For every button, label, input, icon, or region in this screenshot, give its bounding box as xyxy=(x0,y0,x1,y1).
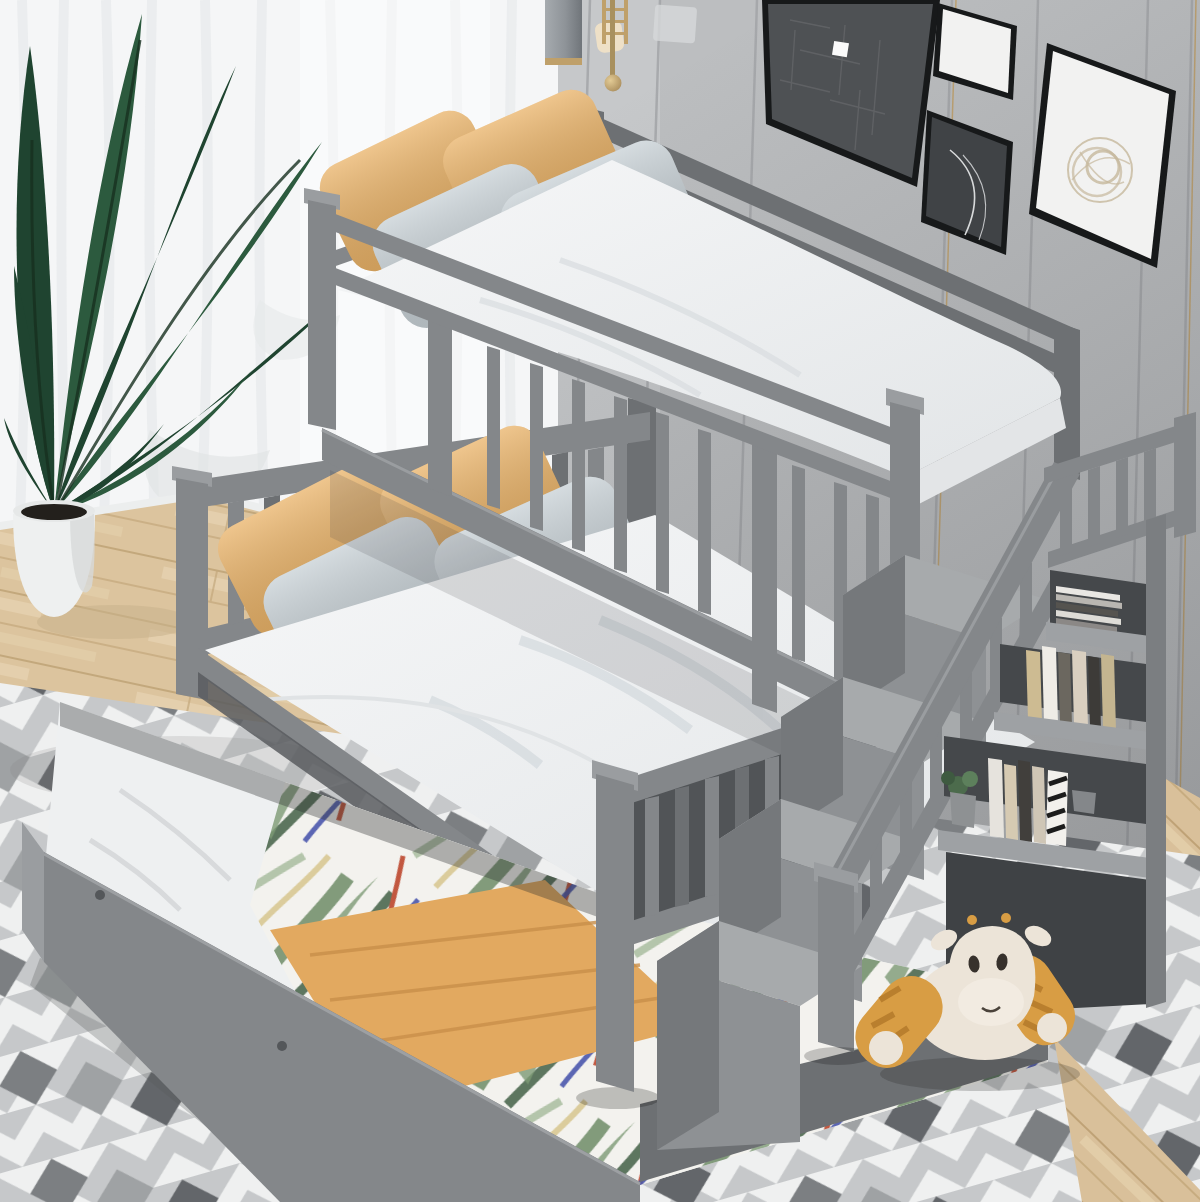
pot-soil xyxy=(21,504,87,520)
giraffe-paw xyxy=(869,1031,903,1065)
sconce-rod xyxy=(610,0,615,78)
pendant-lamp xyxy=(545,0,582,65)
trundle-knob xyxy=(277,1041,287,1051)
giraffe-paw xyxy=(1037,1013,1067,1043)
landing-end-post xyxy=(1174,412,1196,538)
gray-bowl xyxy=(1072,790,1096,814)
striped-bookend xyxy=(1046,770,1068,846)
head-post xyxy=(308,200,336,430)
giraffe-shadow xyxy=(880,1057,1080,1091)
guardrail-post xyxy=(428,318,452,497)
giraffe-horn xyxy=(967,915,977,925)
foot-near-post xyxy=(596,774,634,1092)
trundle-knob xyxy=(95,890,105,900)
bedroom-photo xyxy=(0,0,1200,1202)
pendant-brass-ring xyxy=(545,58,582,65)
sconce-shade xyxy=(594,20,625,53)
art-white-square xyxy=(832,41,849,57)
guardrail-mid-post xyxy=(752,440,777,713)
giraffe-muzzle xyxy=(958,978,1024,1026)
railing-bottom-newel xyxy=(818,876,854,1052)
giraffe-horn xyxy=(1001,913,1011,923)
sconce-ball xyxy=(605,75,622,92)
pendant-shade xyxy=(545,0,582,62)
bookcase-right-board xyxy=(1146,514,1166,1008)
scene-canvas xyxy=(0,0,1200,1202)
